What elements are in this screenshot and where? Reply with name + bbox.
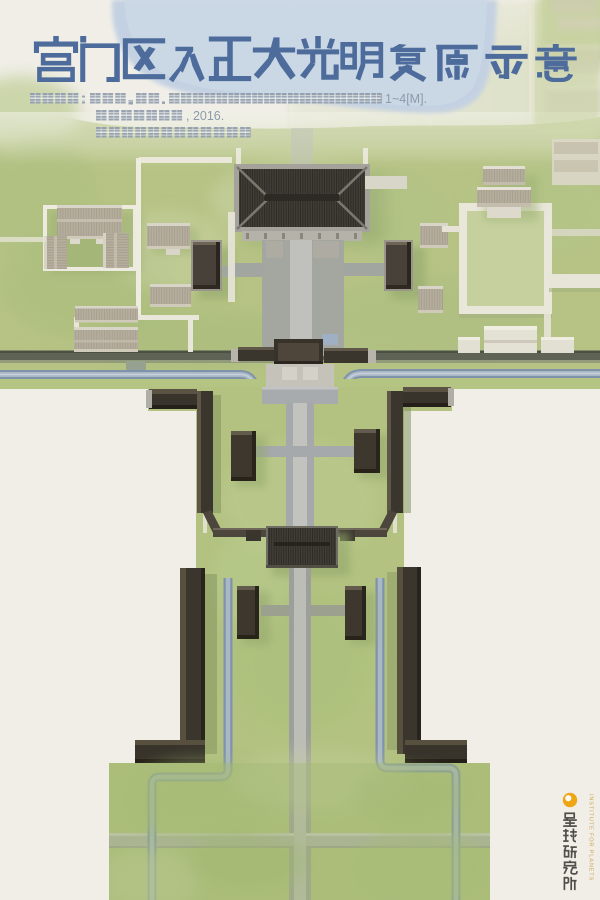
svg-text:, 2016.: , 2016. — [186, 109, 224, 123]
svg-text:1~4[M].: 1~4[M]. — [385, 92, 427, 106]
svg-text:INSTITUTE FOR PLANETS: INSTITUTE FOR PLANETS — [588, 794, 594, 881]
